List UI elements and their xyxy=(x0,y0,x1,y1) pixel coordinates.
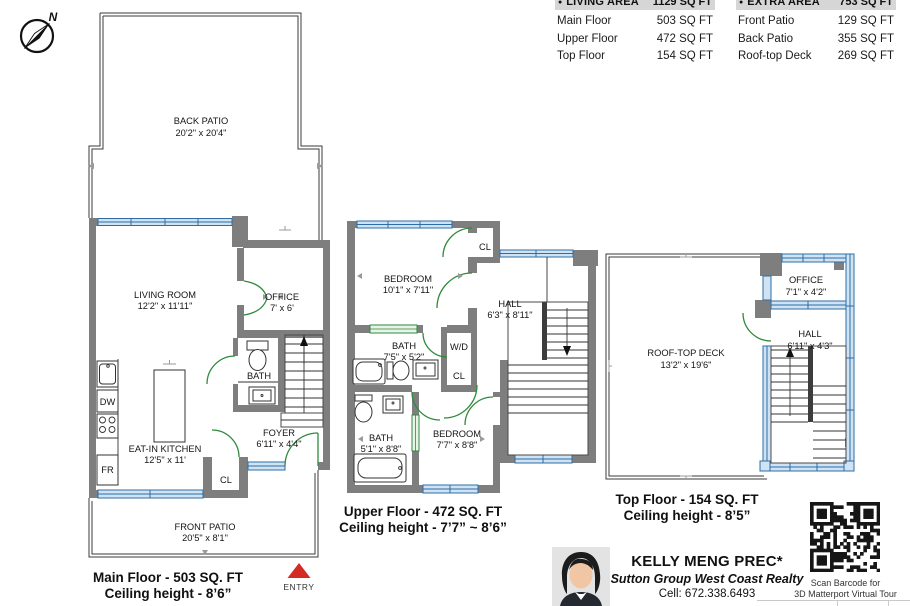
qr-caption: Scan Barcode for 3D Matterport Virtual T… xyxy=(788,578,903,599)
room-label-bath1: BATH xyxy=(392,341,416,351)
room-label-office: OFFICE xyxy=(265,292,299,302)
room-dims-office: 7' x 6' xyxy=(270,303,294,313)
room-label-hall: HALL xyxy=(498,299,521,309)
table-row: Main Floor 503 SQ FT xyxy=(555,13,715,30)
back-patio-outline xyxy=(89,13,322,240)
room-label-back-patio: BACK PATIO xyxy=(174,116,228,126)
extra-area-title: EXTRA AREA xyxy=(747,0,839,8)
entry-marker: ENTRY xyxy=(283,563,314,592)
room-label-hall: HALL xyxy=(798,329,821,339)
main-floor-caption: Main Floor - 503 SQ. FT Ceiling height -… xyxy=(83,570,253,602)
room-label-office: OFFICE xyxy=(789,275,823,285)
table-row: Front Patio 129 SQ FT xyxy=(736,13,896,30)
living-area-title: LIVING AREA xyxy=(566,0,652,8)
room-dims-foyer: 6'11" x 4'4" xyxy=(256,439,301,449)
label-dishwasher: DW xyxy=(100,397,116,407)
room-dims-hall: 6'11" x 4'3" xyxy=(787,341,832,351)
agent-phone: Cell: 672.338.6493 xyxy=(608,587,806,601)
table-row: Upper Floor 472 SQ FT xyxy=(555,30,715,47)
room-dims-living-room: 12'2" x 11'11" xyxy=(138,301,193,311)
label-washer-dryer: W/D xyxy=(450,342,468,352)
room-dims-bedroom1: 10'1" x 7'11" xyxy=(383,285,433,295)
room-label-closet2: CL xyxy=(453,371,465,381)
room-dims-back-patio: 20'2" x 20'4" xyxy=(176,128,227,138)
table-row: Roof-top Deck 269 SQ FT xyxy=(736,48,896,65)
stair-divider-wall xyxy=(808,346,813,422)
staircase xyxy=(281,335,323,427)
living-area-table: ● LIVING AREA 1129 SQ FT Main Floor 503 … xyxy=(555,0,715,65)
compass-north-label: N xyxy=(49,10,58,24)
room-label-closet1: CL xyxy=(479,242,491,252)
table-row: Back Patio 355 SQ FT xyxy=(736,30,896,47)
staircase xyxy=(508,257,588,455)
room-dims-deck: 13'2" x 19'6" xyxy=(661,360,712,370)
agent-info: KELLY MENG PREC* Sutton Group West Coast… xyxy=(608,553,806,601)
room-dims-bedroom2: 7'7" x 8'8" xyxy=(437,440,478,450)
room-label-bedroom2: BEDROOM xyxy=(433,429,481,439)
living-area-header: ● LIVING AREA 1129 SQ FT xyxy=(555,0,715,10)
room-label-kitchen: EAT-IN KITCHEN xyxy=(129,444,202,454)
top-floor-plan: ROOF-TOP DECK 13'2" x 19'6" OFFICE 7'1" … xyxy=(600,246,860,486)
room-label-bedroom1: BEDROOM xyxy=(384,274,432,284)
room-label-bath: BATH xyxy=(247,371,271,381)
floorplan-sheet: N ● LIVING AREA 1129 SQ FT Main Floor 50… xyxy=(0,0,910,606)
label-fridge: FR xyxy=(101,465,114,475)
room-label-living-room: LIVING ROOM xyxy=(134,290,196,300)
agent-name: KELLY MENG PREC* xyxy=(608,553,806,571)
stair-divider-wall xyxy=(542,302,547,360)
agent-photo xyxy=(552,547,610,606)
room-label-closet: CL xyxy=(220,475,232,485)
room-dims-bath1: 7'5" x 5'2" xyxy=(384,352,425,362)
top-floor-caption: Top Floor - 154 SQ. FT Ceiling height - … xyxy=(602,492,772,524)
table-row: Top Floor 154 SQ FT xyxy=(555,48,715,65)
room-dims-front-patio: 20'5" x 8'1" xyxy=(182,533,228,543)
room-dims-office: 7'1" x 4'2" xyxy=(786,287,827,297)
room-dims-hall: 6'3" x 8'11" xyxy=(487,310,532,320)
room-label-bath2: BATH xyxy=(369,433,393,443)
room-label-front-patio: FRONT PATIO xyxy=(175,522,236,532)
room-dims-kitchen: 12'5" x 11' xyxy=(144,455,186,465)
table-corner-lines xyxy=(757,600,910,606)
main-floor-plan: BACK PATIO 20'2" x 20'4" LIVING ROOM 12'… xyxy=(85,8,335,592)
bullet-icon: ● xyxy=(558,0,562,6)
qr-code xyxy=(810,502,880,572)
room-dims-bath2: 5'1" x 8'8" xyxy=(361,444,402,454)
walls xyxy=(89,216,330,498)
bath-fixtures xyxy=(353,359,438,482)
agent-company: Sutton Group West Coast Realty xyxy=(608,571,806,587)
upper-floor-caption: Upper Floor - 472 SQ. FT Ceiling height … xyxy=(338,504,508,536)
entry-label: ENTRY xyxy=(283,582,314,592)
extra-area-total: 753 SQ FT xyxy=(839,0,893,8)
living-area-total: 1129 SQ FT xyxy=(653,0,712,8)
upper-floor-plan: BEDROOM 10'1" x 7'11" CL HALL 6'3" x 8'1… xyxy=(345,213,600,505)
compass-icon: N xyxy=(12,6,66,60)
extra-area-table: ● EXTRA AREA 753 SQ FT Front Patio 129 S… xyxy=(736,0,896,65)
room-label-foyer: FOYER xyxy=(263,428,295,438)
bullet-icon: ● xyxy=(739,0,743,6)
extra-area-header: ● EXTRA AREA 753 SQ FT xyxy=(736,0,896,10)
room-label-deck: ROOF-TOP DECK xyxy=(647,348,725,358)
